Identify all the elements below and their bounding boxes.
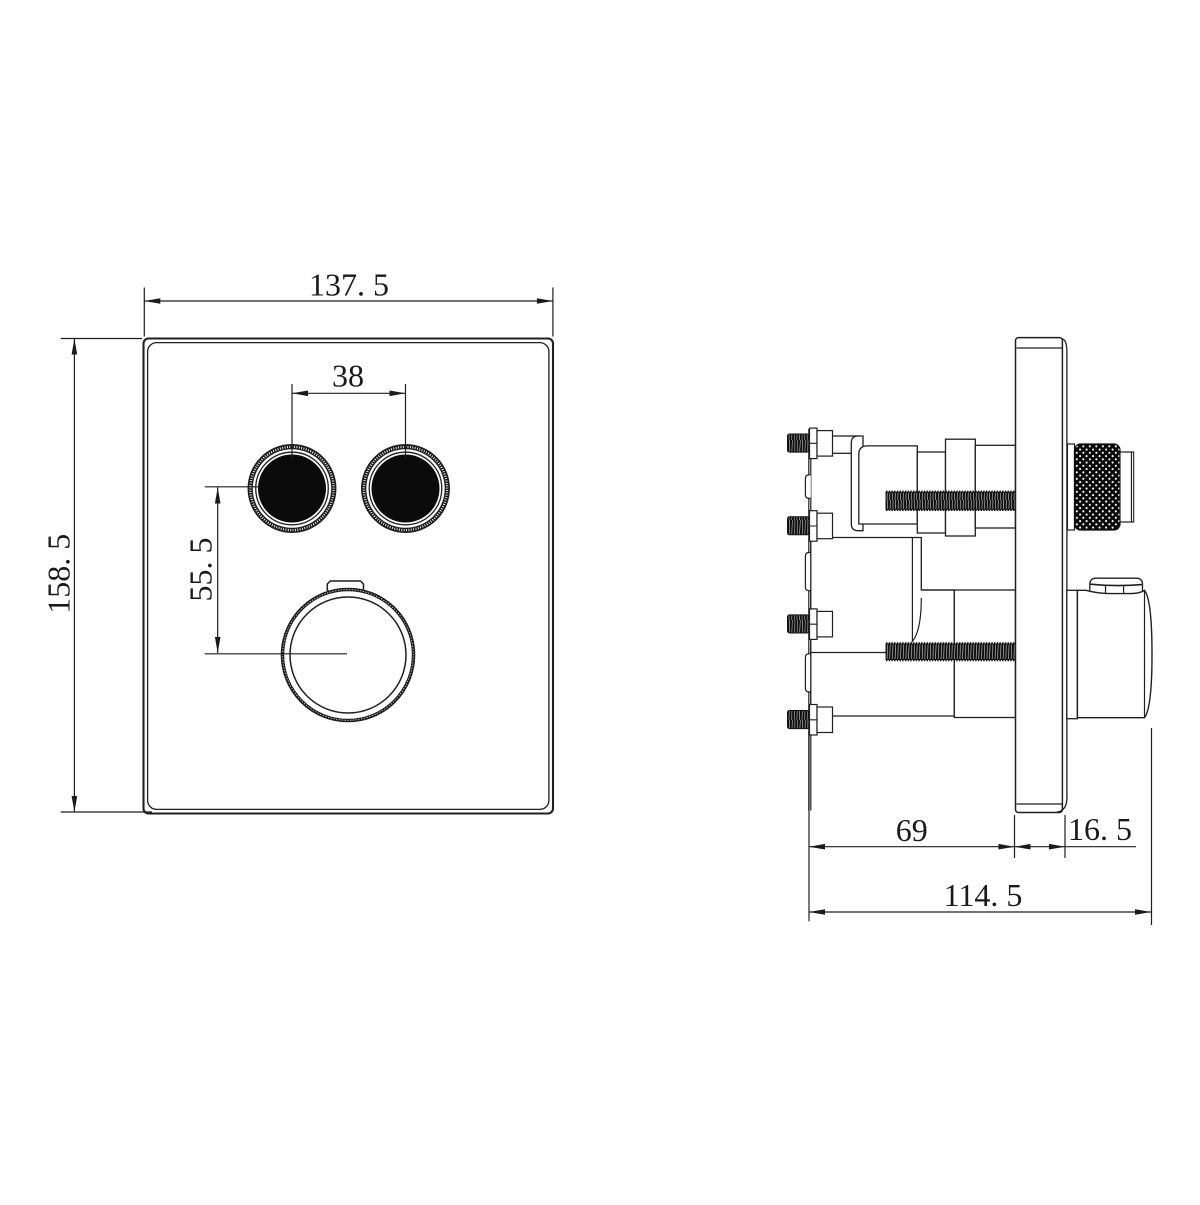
svg-text:16. 5: 16. 5 <box>1068 811 1132 847</box>
svg-text:137. 5: 137. 5 <box>309 267 389 303</box>
svg-text:55. 5: 55. 5 <box>183 538 219 602</box>
svg-text:69: 69 <box>896 812 928 848</box>
svg-text:38: 38 <box>332 358 364 394</box>
svg-text:158. 5: 158. 5 <box>41 534 77 614</box>
svg-text:114. 5: 114. 5 <box>944 877 1023 913</box>
